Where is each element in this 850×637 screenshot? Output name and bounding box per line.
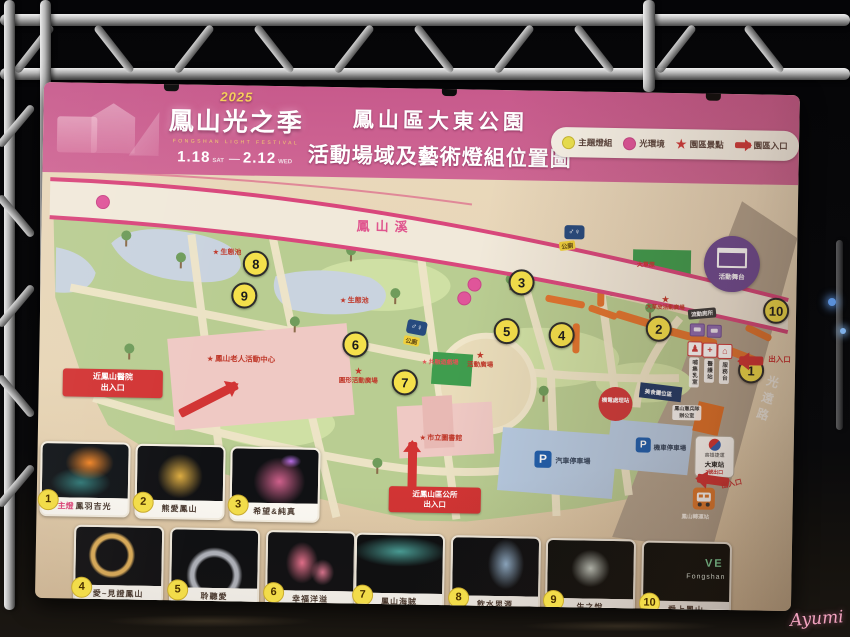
- power-station-label: 機電處理站: [597, 398, 633, 406]
- lantern-name: 愛上鳳山: [668, 604, 704, 611]
- portable-toilet-icon: [707, 325, 722, 338]
- card-number: 7: [352, 584, 373, 605]
- lantern-name: 鳳羽吉光: [76, 501, 112, 513]
- lantern-photo: [267, 532, 354, 591]
- truss-brace: [493, 24, 535, 75]
- festival-title: 鳳山光之季: [161, 101, 312, 140]
- moto-parking-icon: P: [636, 437, 651, 452]
- lantern-card-3: 3希望&純真: [229, 446, 320, 523]
- main-lantern-tag: 主燈: [58, 500, 74, 511]
- ground-reflection: [60, 612, 360, 630]
- lantern-card-9: 9生之悅: [545, 538, 636, 611]
- truss-top-tube: [0, 14, 850, 26]
- mrt-station-name: 大東站: [695, 458, 733, 469]
- nursing-room-label: 哺集乳室: [689, 357, 700, 387]
- banner-clip: [442, 87, 457, 96]
- truss-brace: [93, 24, 135, 75]
- krtc-logo-icon: [709, 439, 721, 451]
- lantern-name: 愛~見證鳳山: [93, 588, 144, 600]
- card-number: 4: [71, 577, 92, 598]
- spot-lawn-plaza: 大草皮活動廣場: [646, 296, 685, 312]
- card-number: 5: [167, 579, 188, 600]
- medical-station-icon: +: [702, 343, 717, 358]
- banner-header: 2025 鳳山光之季 FONGSHAN LIGHT FESTIVAL 1.18S…: [42, 82, 799, 185]
- car-parking-icon: P: [534, 451, 551, 468]
- lantern-photo: [42, 443, 129, 498]
- distant-light: [828, 298, 836, 306]
- mp-office-label: 鳳山憲兵隊辦公室: [672, 405, 701, 421]
- pink-circle-icon: [623, 137, 636, 150]
- spot-eco-pond-2: 生態池: [340, 295, 369, 305]
- car-parking-label: 汽車停車場: [555, 456, 590, 467]
- distant-light: [840, 328, 846, 334]
- truss-brace: [573, 24, 615, 75]
- truss-brace: [655, 24, 697, 75]
- map-legend: 主題燈組 光環境 ★園區景點 園區入口: [551, 127, 799, 161]
- entrance-east-arrow: [739, 356, 763, 365]
- lantern-photo: [171, 529, 258, 588]
- restroom-label: 公廁: [559, 240, 576, 251]
- card-number: 1: [38, 489, 59, 510]
- truss-brace: [743, 24, 785, 75]
- lantern-card-1: 1主燈鳳羽吉光: [39, 441, 130, 518]
- festival-map-banner: 2025 鳳山光之季 FONGSHAN LIGHT FESTIVAL 1.18S…: [35, 82, 800, 611]
- lantern-photo: [137, 446, 224, 501]
- card-number: 10: [639, 592, 660, 611]
- lantern-name: 幸福洋溢: [292, 593, 328, 605]
- truss-brace: [333, 24, 375, 75]
- lantern-card-7: 7鳳山海賊: [354, 532, 445, 611]
- arrow-icon: [735, 142, 751, 148]
- map-title-line2: 活動場域及藝術燈組位置圖: [295, 138, 585, 173]
- spot-playground: 共融遊戲場: [422, 357, 459, 367]
- moto-parking-label: 機車停車場: [654, 442, 687, 453]
- map-title: 鳳山區大東公園 活動場域及藝術燈組位置圖: [295, 102, 586, 173]
- lantern-card-4: 4愛~見證鳳山: [73, 525, 164, 606]
- lantern-card-10: VE Fongshan 10愛上鳳山: [641, 541, 732, 612]
- lantern-name: 希望&純真: [253, 506, 296, 518]
- lantern-photo: [75, 527, 162, 586]
- lantern-photo: [452, 537, 539, 596]
- date-end: 2.12: [243, 149, 276, 167]
- truss-brace: [413, 24, 455, 75]
- map-title-line1: 鳳山區大東公園: [295, 102, 585, 137]
- elder-center-building: [167, 323, 354, 430]
- card-number: 6: [263, 582, 284, 603]
- legend-light-env: 光環境: [623, 137, 665, 151]
- stage-icon: [717, 247, 747, 268]
- entrance-office-arrow: [407, 442, 417, 488]
- lantern-photo: [547, 540, 634, 599]
- river-label: 鳳山溪: [356, 215, 413, 235]
- nursing-room-icon: ♟: [687, 341, 702, 356]
- truss-brace: [253, 24, 295, 75]
- lantern-name: 鳳山海賊: [381, 596, 417, 608]
- bus-station-label: 鳳山轉運站: [681, 512, 709, 520]
- lantern-photo: [232, 448, 319, 503]
- lantern-card-5: 5聆聽愛: [169, 527, 260, 608]
- photographer-watermark: Ayumi: [790, 607, 845, 631]
- stage-label: 活動舞台: [719, 270, 745, 280]
- ground-reflection: [480, 618, 760, 634]
- medical-station-label: 醫護站: [704, 359, 714, 383]
- truss-front-pole: [643, 0, 655, 92]
- date-start: 1.18: [177, 148, 210, 166]
- restroom-icon: ♂♀: [564, 225, 584, 239]
- card-number: 2: [132, 492, 153, 513]
- lantern-photo: VE Fongshan: [643, 543, 730, 602]
- lantern-photo: [356, 535, 443, 594]
- photo-led-text: Fongshan: [686, 573, 725, 581]
- legend-spots: ★園區景點: [676, 138, 724, 151]
- spot-library: 市立圖書館: [420, 433, 463, 444]
- lantern-card-2: 2熊愛鳳山: [134, 444, 225, 521]
- lantern-card-6: 6幸福洋溢: [265, 530, 356, 611]
- lantern-card-8: 8飲水思源: [450, 535, 541, 611]
- card-number: 9: [543, 590, 564, 611]
- lantern-name: 聆聽愛: [200, 591, 227, 602]
- portable-toilet-icon: [690, 323, 705, 336]
- entrance-hospital-label: 近鳳山醫院 出入口: [63, 368, 163, 397]
- photo-led-text: VE: [705, 558, 724, 570]
- spot-activity-plaza: 活動廣場: [467, 351, 493, 368]
- background-pole: [836, 240, 843, 430]
- night-photo-scene: 2025 鳳山光之季 FONGSHAN LIGHT FESTIVAL 1.18S…: [0, 0, 850, 637]
- card-number: 3: [227, 494, 248, 515]
- lantern-name: 飲水思源: [477, 599, 513, 611]
- festival-logo-illustration: [51, 90, 160, 166]
- yellow-circle-icon: [562, 136, 575, 149]
- festival-subtitle: FONGSHAN LIGHT FESTIVAL: [161, 138, 311, 147]
- spot-eco-pond-1: 生態池: [213, 247, 242, 257]
- spot-circular-plaza: 圓形活動廣場: [339, 367, 378, 385]
- legend-entrance: 園區入口: [735, 139, 788, 152]
- legend-theme-lanterns: 主題燈組: [562, 136, 612, 150]
- entrance-east-label: 出入口: [768, 354, 791, 365]
- lantern-name: 熊愛鳳山: [161, 503, 197, 515]
- lantern-name: 生之悅: [576, 601, 603, 611]
- date-start-day: SAT: [212, 158, 224, 164]
- date-end-day: WED: [278, 159, 292, 165]
- bus-station-icon: [693, 487, 715, 509]
- grass-label: 大草原: [637, 259, 655, 268]
- banner-clip: [164, 82, 179, 91]
- star-icon: ★: [676, 139, 687, 149]
- spot-elder-center: 鳳山老人活動中心: [207, 353, 275, 365]
- banner-clip: [706, 92, 721, 101]
- card-number: 8: [448, 587, 469, 608]
- festival-dates: 1.18SAT—2.12WED: [161, 148, 311, 169]
- truss-brace: [173, 24, 215, 75]
- entrance-office-label: 近鳳山區公所 出入口: [389, 486, 481, 514]
- festival-logo: 2025 鳳山光之季 FONGSHAN LIGHT FESTIVAL 1.18S…: [161, 88, 312, 169]
